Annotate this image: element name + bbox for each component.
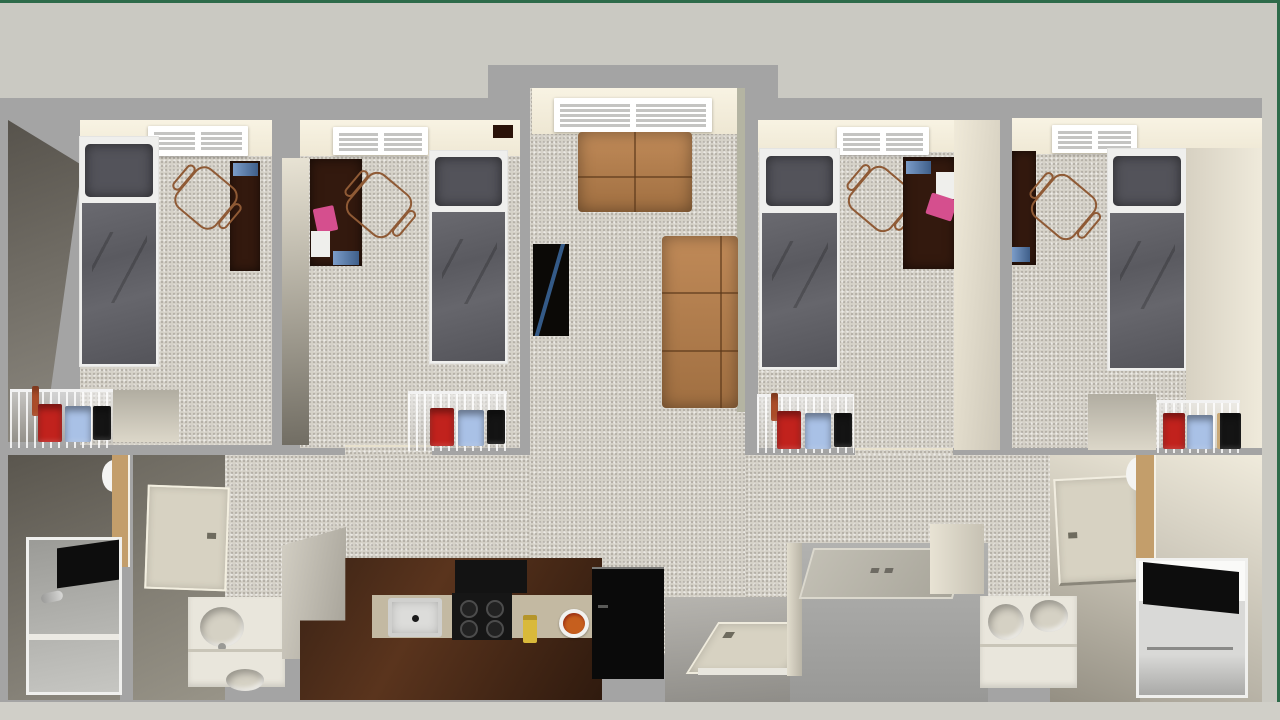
food-plate [559,609,589,638]
bathwest-door [144,485,230,592]
bedroom3-laptop [906,161,931,174]
kitchen-sink [388,598,442,637]
sink-bowl [1030,600,1068,632]
bedroom3-east-wall [954,120,1000,450]
bedroom3-window [837,127,929,155]
bedroom4-closet-nook [1088,394,1156,450]
red-bin [430,408,454,446]
bedroom2-window [333,127,428,155]
bedroom2-west-wall [282,158,309,445]
bedroom2-paper-sheet [311,231,330,257]
laundry-east-wall [930,524,984,594]
tv-screen-reflection [533,244,566,336]
bedroom2-storage-shelf [408,391,507,451]
closet-door-handle [870,568,879,573]
living-room-window [554,98,712,132]
bedroom4-bed [1108,149,1186,370]
bedroom1-window [148,126,248,156]
food [563,613,585,634]
bedroom1-laptop [233,163,258,176]
loveseat [578,132,692,212]
duvet [432,212,506,360]
bedroom4-laptop [1012,247,1030,262]
batheast-door [1053,475,1142,586]
living-room-east-wall [737,88,745,412]
bathwest-shower [26,537,122,695]
door-handle [722,632,735,638]
sink-bowl-lower [226,669,264,691]
sink-bowl [988,604,1024,640]
bedroom2-bed [430,151,507,363]
three-seat-sofa [662,236,738,408]
black-bin [834,413,852,447]
bathwest-sink-vanity [188,597,285,687]
duvet [1110,213,1185,368]
blue-bin [65,406,91,442]
laundry-west-ledge [787,543,802,676]
paper-towel-holder [523,615,537,643]
bedroom4-storage-shelf [1157,400,1240,453]
batheast-sink-vanity [980,596,1077,688]
sink-bowl [200,607,244,647]
pillow [85,144,152,197]
pillow [435,157,501,206]
blue-bin [1187,415,1213,449]
black-bin [93,406,111,440]
shower-floor-edge [1147,647,1233,650]
pillow [766,156,834,207]
red-bin [1163,413,1185,449]
floorplan-render [0,0,1280,720]
refrigerator [592,567,664,679]
top-green-border [0,0,1280,3]
bedroom3-bed [760,149,839,369]
bedroom2-laptop [333,251,359,265]
door-handle [207,533,216,539]
sink-drain [412,615,419,622]
batheast-wood-trim [1136,455,1156,565]
background-bottom-band [0,702,1280,720]
duvet [82,203,157,363]
bedroom1-bed [80,137,158,366]
shower-ledge [29,634,119,640]
background-right-band [1262,98,1277,720]
blue-bin [458,410,484,446]
pillow [1113,156,1180,207]
black-bin [1217,413,1241,449]
batheast-shower [1136,558,1248,698]
bedroom2-corner-object [493,125,513,138]
red-bin [38,404,62,442]
closet-door-handle [884,568,893,573]
tv-media-stand [533,244,569,336]
shower-towel [57,540,119,589]
shower-towel [1143,562,1239,614]
bedroom3-storage-shelf [757,394,854,453]
kitchen-backsplash [455,560,527,593]
kitchen-cooktop [452,593,512,640]
blue-bin [805,413,831,449]
bedroom1-storage-shelf [10,389,113,448]
fridge-handle [598,605,608,608]
bedroom1-closet-nook [113,390,179,442]
vanity-ledge [188,649,285,652]
shower-head [40,590,64,604]
duvet [762,213,838,367]
red-bin [777,411,801,449]
black-bin [487,410,505,444]
vanity-ledge [980,644,1077,647]
door-handle [1068,532,1077,538]
